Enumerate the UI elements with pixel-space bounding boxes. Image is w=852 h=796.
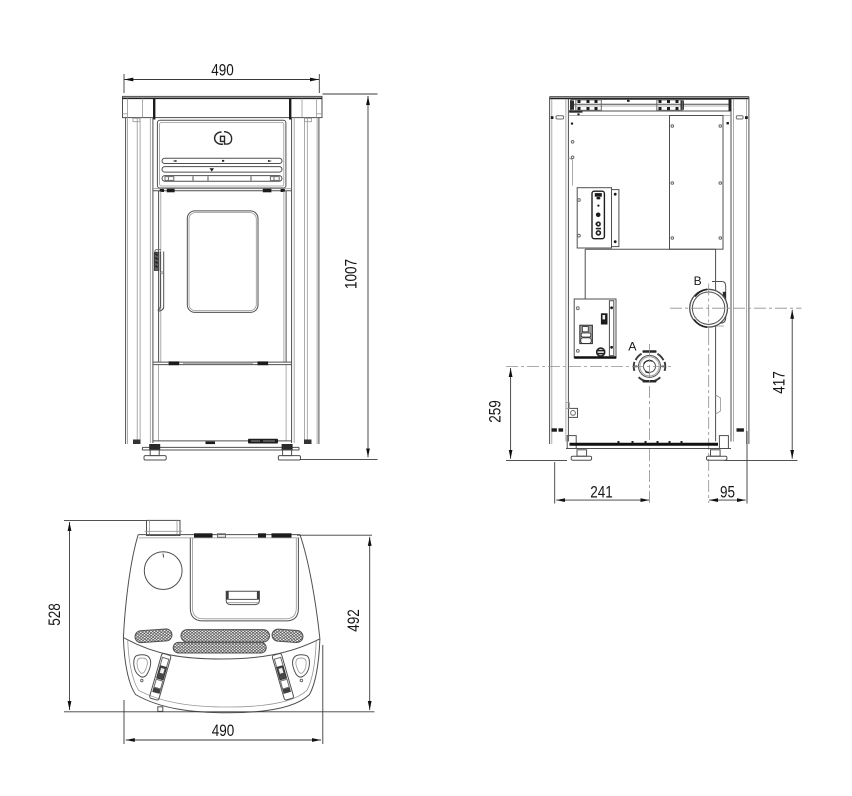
svg-text:490: 490 [212, 721, 235, 740]
svg-text:A: A [628, 339, 637, 353]
svg-text:490: 490 [211, 61, 234, 80]
svg-text:528: 528 [45, 603, 64, 626]
svg-text:417: 417 [769, 371, 788, 394]
svg-text:259: 259 [486, 400, 505, 423]
svg-text:1007: 1007 [342, 259, 361, 289]
svg-text:95: 95 [720, 482, 735, 501]
svg-text:241: 241 [590, 482, 613, 501]
svg-text:492: 492 [344, 609, 363, 632]
svg-text:B: B [694, 274, 702, 288]
